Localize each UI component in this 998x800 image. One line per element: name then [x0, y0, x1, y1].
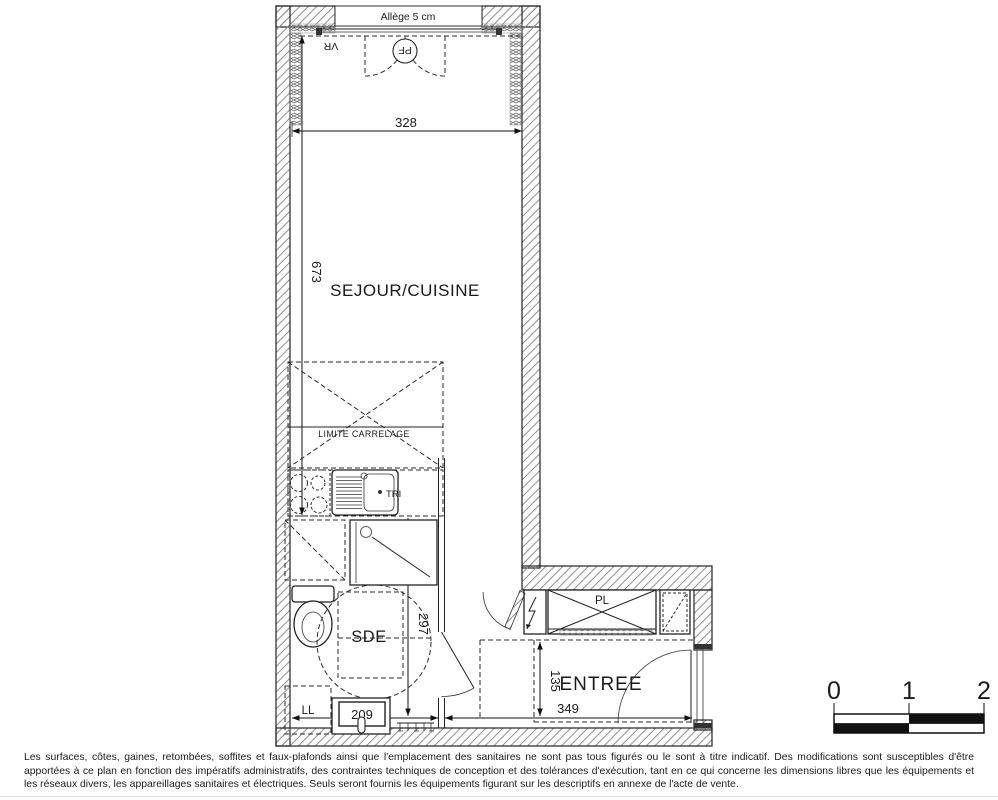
vanity-unit: 209	[332, 698, 390, 734]
floor-plan: Allège 5 cm PF VR 328 673 297 135 349	[0, 0, 998, 753]
scale-tick-0: 0	[827, 677, 841, 705]
duct-closet-icon	[660, 590, 690, 634]
tiling-limit-zone: LIMITE CARRELAGE	[288, 362, 443, 468]
corridor-door	[483, 591, 525, 630]
dim-673: 673	[309, 261, 324, 283]
scale-bar: 0 1 2	[827, 677, 991, 733]
disclaimer-text: Les surfaces, côtes, gaines, retombées, …	[24, 751, 974, 792]
entree-room: PL ENTREE	[480, 590, 712, 728]
sde-door	[442, 632, 475, 697]
cabinet-dashed-icon	[285, 520, 345, 580]
tri-label: TRI	[386, 489, 401, 500]
pl-label: PL	[595, 595, 610, 607]
pf-label: PF	[398, 44, 411, 56]
scale-tick-2: 2	[977, 677, 991, 705]
dimension-sejour-width: 328	[292, 115, 522, 137]
closet-pl-icon: PL	[548, 590, 656, 635]
dim-328: 328	[395, 115, 417, 130]
shower-icon	[350, 520, 437, 585]
sde-room: SDE LL 209	[285, 520, 437, 734]
kitchen-counter: TRI	[288, 470, 443, 516]
partition-sde	[439, 458, 475, 728]
ll-label: LL	[302, 705, 315, 717]
room-label-sde: SDE	[351, 628, 386, 646]
hob-icon	[288, 470, 330, 516]
tiling-limit-label: LIMITE CARRELAGE	[318, 429, 409, 439]
toilet-icon	[292, 586, 334, 647]
scale-tick-1: 1	[902, 677, 916, 705]
window-allege-label: Allège 5 cm	[381, 11, 436, 23]
washing-machine-icon: LL	[285, 686, 331, 734]
dimension-sejour-length: 673	[302, 36, 324, 515]
room-label-sejour-cuisine: SEJOUR/CUISINE	[330, 281, 480, 300]
dim-297: 297	[416, 613, 431, 635]
dim-349: 349	[557, 701, 579, 716]
room-label-entree: ENTREE	[559, 674, 642, 695]
electrical-panel-icon	[524, 590, 546, 634]
bottom-divider	[0, 796, 998, 797]
vr-label: VR	[323, 40, 338, 52]
